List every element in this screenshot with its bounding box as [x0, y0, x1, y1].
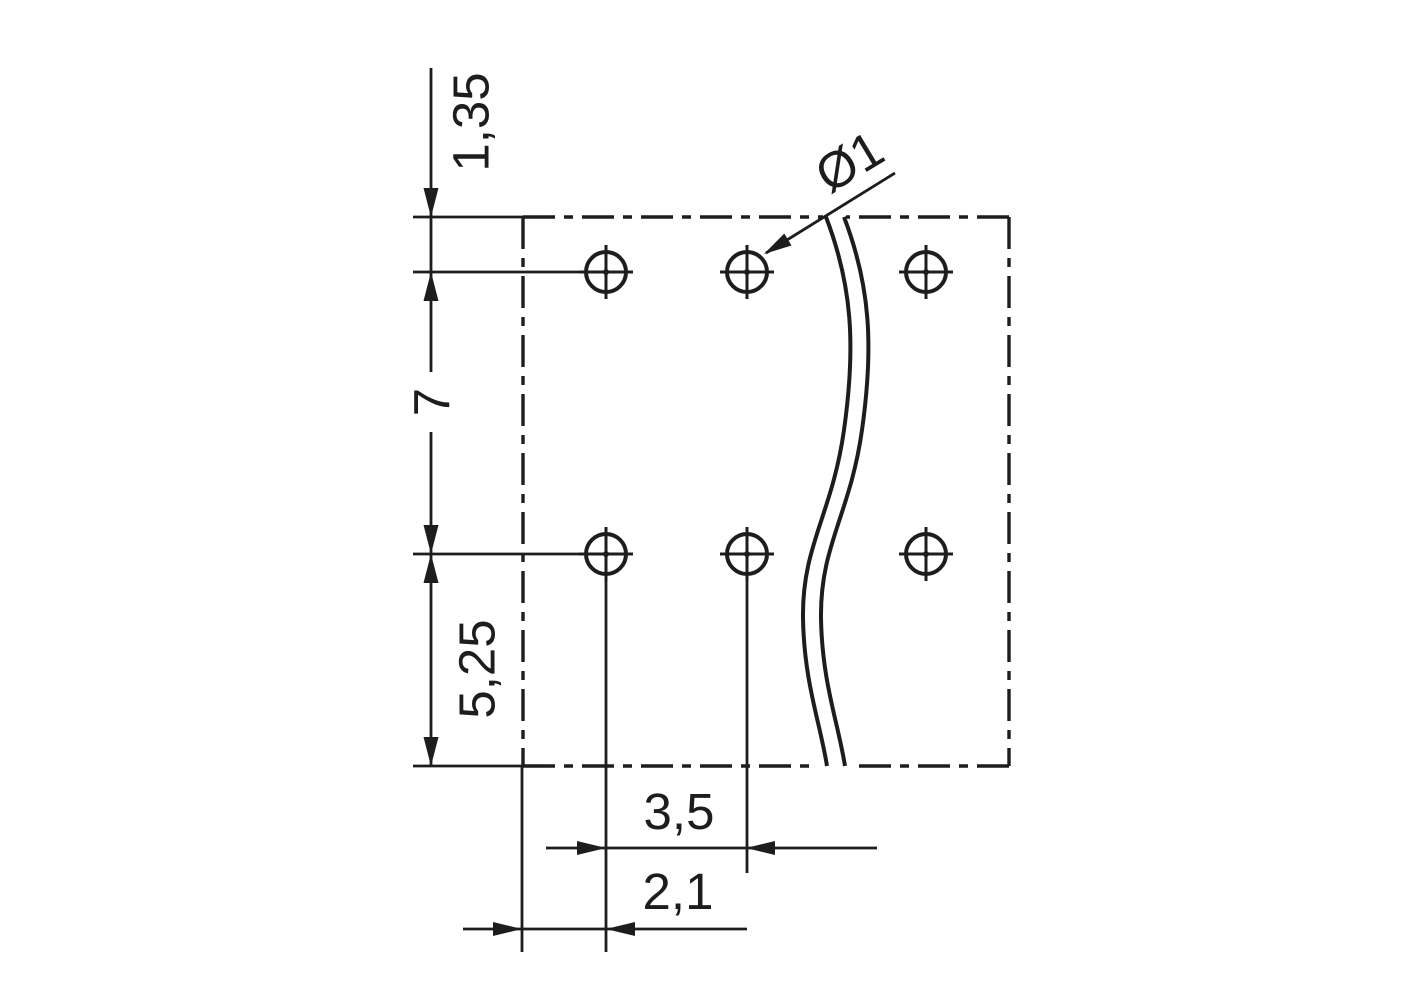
hole-center-dot	[603, 551, 609, 557]
arrowhead-down-icon	[424, 188, 439, 217]
leader-arrowhead-icon	[764, 234, 792, 255]
dim-label-top-offset: 1,35	[442, 72, 499, 171]
technical-drawing: 1,35 7 5,25 3,5 2,1 Ø1	[0, 0, 1410, 1004]
arrowhead-right-icon	[577, 841, 606, 855]
arrowhead-up-icon	[424, 272, 439, 301]
hole-center-dot	[923, 269, 929, 275]
dimension-labels: 1,35 7 5,25 3,5 2,1 Ø1	[403, 72, 893, 920]
hole-center-dot	[744, 269, 750, 275]
dim-label-edge-offset: 2,1	[643, 863, 714, 920]
dim-label-row-pitch: 7	[403, 388, 460, 416]
hole-marker	[899, 527, 953, 581]
hole-center-dot	[744, 551, 750, 557]
arrowhead-left-icon	[746, 841, 775, 855]
hole-markers	[579, 245, 953, 581]
arrowhead-down-icon	[424, 525, 439, 554]
hole-marker	[899, 245, 953, 299]
break-line	[803, 217, 868, 766]
arrowhead-left-icon	[606, 922, 635, 936]
dim-label-hole-pitch: 3,5	[644, 783, 715, 840]
hole-center-dot	[603, 269, 609, 275]
hole-marker	[579, 245, 633, 299]
dim-label-bottom-offset: 5,25	[448, 619, 505, 718]
arrowhead-up-icon	[424, 554, 439, 583]
hole-marker	[720, 527, 774, 581]
break-line-right	[821, 217, 868, 766]
hole-marker	[579, 527, 633, 581]
arrowhead-down-icon	[424, 737, 439, 766]
arrowhead-right-icon	[493, 922, 522, 936]
board-outline	[523, 217, 1009, 766]
hole-center-dot	[923, 551, 929, 557]
dim-label-hole-diameter: Ø1	[806, 120, 894, 204]
